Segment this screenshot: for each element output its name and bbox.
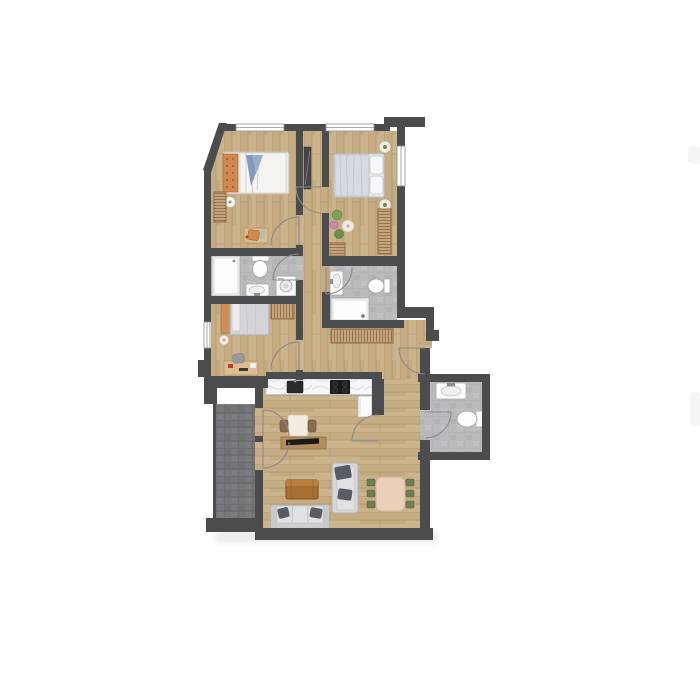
wc-toilet: [457, 411, 483, 427]
washing-machine: [276, 276, 296, 296]
bench: [328, 243, 345, 256]
sofa: [271, 505, 329, 532]
balcony-floor: [216, 404, 255, 518]
floor-plan-canvas: [0, 0, 700, 700]
single-bed: [221, 300, 269, 335]
bedside-table: [379, 141, 391, 153]
kitchen-sink: [287, 380, 303, 394]
window: [326, 124, 374, 131]
doorway-floor: [255, 408, 263, 436]
tv-sideboard: [281, 437, 326, 449]
window: [204, 322, 210, 348]
chaise-longue: [332, 463, 358, 513]
stool: [219, 335, 229, 345]
washbasin: [246, 284, 269, 296]
double-bed-2: [334, 154, 384, 197]
double-bed-1: [223, 152, 289, 194]
doorway-floor: [322, 187, 329, 213]
wc-washbasin: [436, 383, 466, 399]
radiator: [331, 329, 393, 343]
shower-tray: [331, 298, 369, 322]
hallway-wardrobe: [304, 147, 311, 189]
radiator: [271, 302, 294, 319]
dining-table: [376, 477, 405, 511]
toilet: [252, 256, 269, 278]
doorway-floor: [255, 442, 263, 470]
entrance-threshold-floor: [418, 341, 432, 348]
window: [397, 146, 405, 186]
window: [236, 124, 284, 131]
coffee-table: [286, 480, 318, 499]
desk-1: [244, 228, 268, 243]
balcony-railing: [213, 404, 216, 520]
radiator: [214, 192, 226, 222]
radiator: [378, 209, 391, 254]
shower: [212, 256, 240, 296]
toilet: [368, 279, 390, 293]
cooktop: [330, 380, 350, 394]
floor-plan: [0, 0, 700, 700]
tall-cabinet: [358, 396, 372, 417]
kitchen-counter: [266, 379, 372, 395]
